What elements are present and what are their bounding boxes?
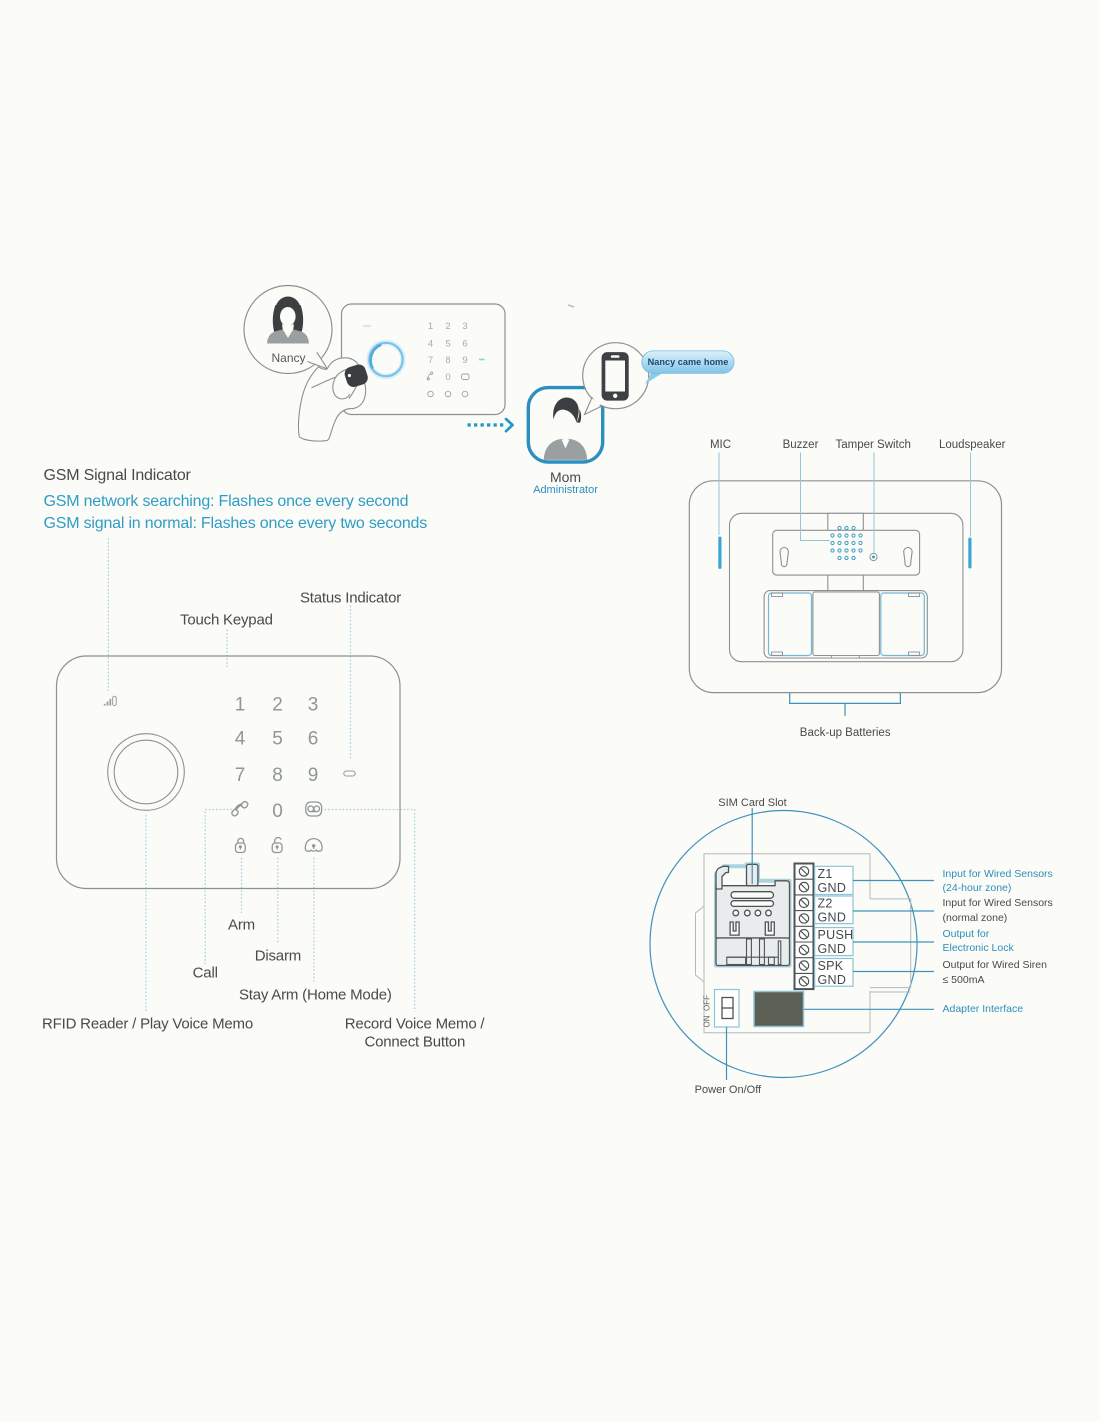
svg-text:1: 1	[428, 321, 433, 332]
svg-text:Z2: Z2	[818, 897, 833, 911]
svg-text:GND: GND	[818, 911, 847, 925]
svg-text:3: 3	[308, 695, 319, 716]
svg-text:7: 7	[235, 765, 246, 786]
svg-text:SPK: SPK	[818, 959, 844, 973]
svg-text:8: 8	[272, 765, 283, 786]
svg-text:ON: ON	[703, 1015, 712, 1027]
svg-text:4: 4	[428, 339, 433, 350]
svg-text:2: 2	[272, 695, 283, 716]
svg-text:6: 6	[462, 339, 467, 350]
svg-text:1: 1	[235, 695, 246, 716]
svg-text:8: 8	[445, 355, 450, 366]
svg-text:7: 7	[428, 355, 433, 366]
svg-text:OFF: OFF	[703, 995, 712, 1011]
svg-text:4: 4	[235, 729, 246, 750]
svg-text:3: 3	[462, 321, 467, 332]
svg-text:GND: GND	[818, 881, 847, 895]
svg-text:PUSH: PUSH	[818, 928, 854, 942]
svg-text:GND: GND	[818, 973, 847, 987]
svg-text:9: 9	[308, 765, 319, 786]
svg-text:0: 0	[272, 801, 283, 822]
svg-text:0: 0	[445, 372, 450, 383]
svg-text:GND: GND	[818, 942, 847, 956]
svg-text:9: 9	[462, 355, 467, 366]
svg-text:6: 6	[308, 729, 319, 750]
svg-text:5: 5	[445, 339, 450, 350]
svg-text:Z1: Z1	[818, 867, 833, 881]
svg-text:Nancy came home: Nancy came home	[648, 357, 729, 367]
svg-text:5: 5	[272, 729, 283, 750]
svg-text:2: 2	[445, 321, 450, 332]
